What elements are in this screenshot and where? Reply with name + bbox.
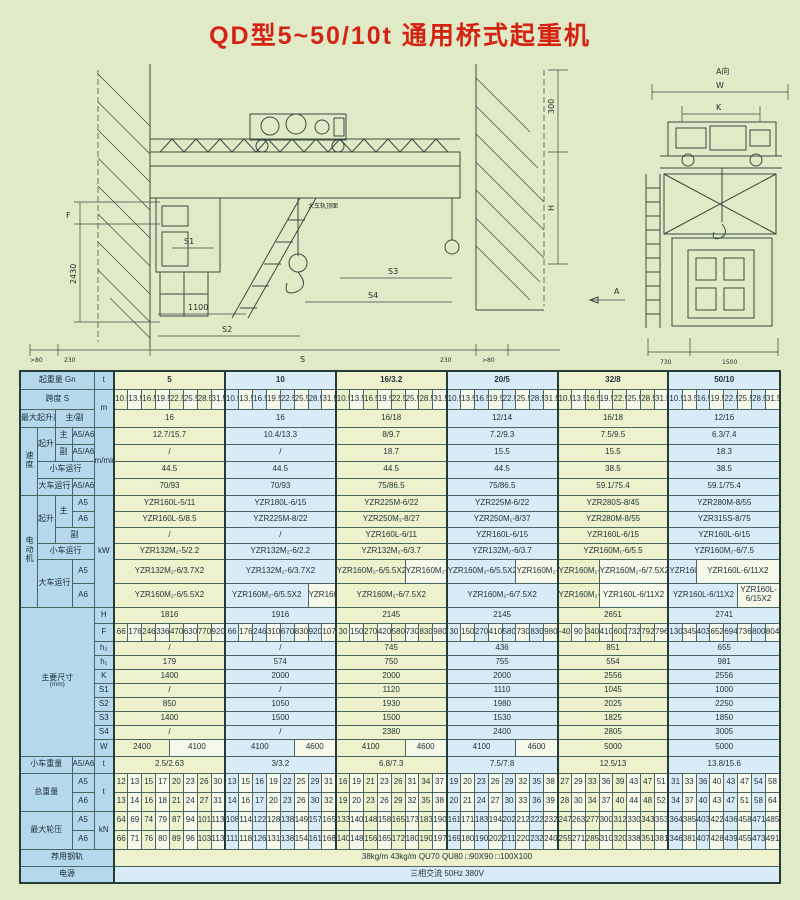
wheel-load-a6-cell: 89 [169,830,183,849]
rail-value: 38kg/m 43kg/m QU70 QU80 □90X90 □100X100 [114,849,780,866]
label-motor: 电动机 [20,495,37,607]
total-weight-a6-cell: 29 [391,792,405,811]
dim-name-h1: h₁ [94,655,114,669]
dim-k-cell: 2000 [336,669,447,683]
wheel-load-a6-cell: 428 [710,830,724,849]
dim-k-cell: 2556 [558,669,669,683]
dim-s2-cell: 1050 [225,697,336,711]
wheel-load-a6-cell: 96 [183,830,197,849]
dim-f-cell: 670 [280,623,294,641]
label-total-weight: 总重量 [20,773,72,811]
motor-aux-cell: YZR160L-6/15 [447,527,558,543]
label-dims-sub: (mm) [21,682,94,689]
speed-bridge-cell: 59.1/75.4 [558,478,669,495]
dim-s4-cell: / [114,725,225,739]
motor-bridge-a6-cell: YZR160L-6/11X2 [599,583,668,607]
dim-f-cell: 176 [239,623,253,641]
dim-name-h2: h₂ [94,641,114,655]
motor-trolley-cell: YZR160M₂-6/7.5 [668,543,780,559]
span-cell: 22.5 [502,389,516,409]
dim-s1-cell: / [225,683,336,697]
motor-trolley-cell: YZR160M₁-6/5.5 [558,543,669,559]
wheel-load-a6-cell: 168 [322,830,336,849]
wheel-load-a5-cell: 79 [156,811,170,830]
end-truck [156,198,316,318]
span-cell: 10.5 [336,389,350,409]
motor-aux-cell: / [225,527,336,543]
total-weight-a6-cell: 20 [447,792,461,811]
dim-h-cell: 1916 [225,607,336,623]
wheel-load-a6-cell: 455 [738,830,752,849]
unit-t: t [94,773,114,811]
total-weight-a5-cell: 25 [294,773,308,792]
wheel-load-a6-cell: 255 [558,830,572,849]
speed-main-cell: 8/9.7 [336,427,447,444]
dim-f-cell: 403 [696,623,710,641]
wheel-load-a5-cell: 87 [169,811,183,830]
dim-s4-cell: 2380 [336,725,447,739]
label-a6: A6 [72,830,94,849]
motor-bridge-a6-cell: YZR160M₂-6/7.5X2 [308,583,336,607]
span-cell: 25.5 [516,389,530,409]
motor-bridge-a5-cell: YZR160M₂-6/5.5X2 [336,559,405,583]
total-weight-a6-cell: 23 [280,792,294,811]
wheel-load-a5-cell: 69 [128,811,142,830]
total-weight-a5-cell: 36 [696,773,710,792]
bridge-girder [150,139,460,198]
motor-bridge-a6-cell: YZR160M₂-6/7.5X2 [558,583,600,607]
total-weight-a5-cell: 35 [530,773,544,792]
label-main: 主 [55,495,72,527]
dim-f-cell: 246 [253,623,267,641]
dim-f-cell: 150 [461,623,475,641]
dim-f-cell: 736 [738,623,752,641]
motor-bridge-a6-cell: YZR160L-6/15X2 [738,583,780,607]
total-weight-a6-cell: 14 [128,792,142,811]
dim-s2-cell: 1930 [336,697,447,711]
motor-aux-cell: YZR160L-6/11 [336,527,447,543]
lift-height-cell: 12/16 [668,409,780,427]
span-cell: 31.5 [765,389,780,409]
dim-name-S1: S1 [94,683,114,697]
label-a6: A6 [72,792,94,811]
speed-aux-cell: 15.5 [447,444,558,461]
label-dims: 主要尺寸(mm) [20,607,94,756]
wheel-load-a6-cell: 271 [571,830,585,849]
total-weight-a6-cell: 34 [585,792,599,811]
total-weight-a5-cell: 15 [142,773,156,792]
span-cell: 10.5 [447,389,461,409]
dim-f-cell: 730 [405,623,419,641]
label-a6: A6 [72,583,94,607]
dim-f-cell: 580 [391,623,405,641]
unit-m-min: m/min [94,427,114,495]
motor-main-a6-cell: YZR250M₁-8/37 [447,511,558,527]
motor-bridge-a6-cell: YZR160M₂-6/7.5X2 [447,583,558,607]
speed-aux-cell: / [114,444,225,461]
total-weight-a6-cell: 21 [461,792,475,811]
total-weight-a5-cell: 22 [280,773,294,792]
dim-f-cell: 66 [114,623,128,641]
total-weight-a5-cell: 23 [377,773,391,792]
dim-span-label: S [300,355,305,364]
dim-f-cell: 792 [641,623,655,641]
unit-t: t [94,756,114,773]
wheel-load-a6-cell: 346 [668,830,682,849]
span-cell: 10.5 [668,389,682,409]
span-cell: 25.5 [627,389,641,409]
span-cell: 22.5 [391,389,405,409]
total-weight-a6-cell: 27 [197,792,211,811]
dim-s2-cell: 850 [114,697,225,711]
span-cell: 28.5 [530,389,544,409]
total-weight-a6-cell: 44 [627,792,641,811]
span-cell: 22.5 [613,389,627,409]
wheel-load-a6-cell: 111 [225,830,239,849]
dim-s3-cell: 1825 [558,711,669,725]
speed-main-cell: 7.2/9.3 [447,427,558,444]
total-weight-a5-cell: 16 [253,773,267,792]
wheel-load-a6-cell: 202 [488,830,502,849]
specification-table: 起重量 Gnt51016/3.220/532/850/10跨度 Sm10.513… [19,370,781,884]
wheel-load-a6-cell: 80 [156,830,170,849]
aux-pulley [445,198,459,254]
wheel-load-a6-cell: 381 [682,830,696,849]
wheel-load-a5-cell: 94 [183,811,197,830]
speed-main-cell: 6.3/7.4 [668,427,780,444]
left-wall [98,64,150,348]
total-weight-a5-cell: 29 [571,773,585,792]
dim-k-cell: 2556 [668,669,780,683]
capacity-header: 16/3.2 [336,371,447,389]
dim-f-cell: 270 [474,623,488,641]
speed-bridge-cell: 75/86.5 [336,478,447,495]
wheel-load-a6-cell: 351 [641,830,655,849]
dim-h-label: H [547,205,556,211]
wheel-load-a5-cell: 385 [682,811,696,830]
span-cell: 16.5 [142,389,156,409]
wheel-load-a6-cell: 320 [613,830,627,849]
dim-f-cell: 980 [544,623,558,641]
motor-main-a5-cell: YZR280M-8/55 [668,495,780,511]
wheel-load-a5-cell: 343 [641,811,655,830]
motor-main-a6-cell: YZR160L-5/8.5 [114,511,225,527]
label-a5: A5 [72,811,94,830]
total-weight-a5-cell: 15 [239,773,253,792]
dim-s1-cell: 1110 [447,683,558,697]
total-weight-a6-cell: 32 [405,792,419,811]
wheel-load-a6-cell: 232 [530,830,544,849]
total-weight-a5-cell: 32 [516,773,530,792]
dim-gt80-right: >80 [482,357,495,364]
dim-f-cell: 980 [433,623,447,641]
dim-w-label: W [716,81,724,90]
dim-s3-cell: 1850 [668,711,780,725]
dim-f-cell: 652 [710,623,724,641]
wheel-load-a6-cell: 381 [655,830,669,849]
span-cell: 25.5 [294,389,308,409]
dim-h1-cell: 179 [114,655,225,669]
total-weight-a5-cell: 12 [114,773,128,792]
total-weight-a5-cell: 16 [336,773,350,792]
wheel-load-a6-cell: 407 [696,830,710,849]
dim-s1-label: S1 [184,237,194,246]
total-weight-a5-cell: 43 [724,773,738,792]
wheel-load-a5-cell: 222 [530,811,544,830]
dim-s3-cell: 1500 [336,711,447,725]
total-weight-a6-cell: 58 [752,792,766,811]
span-cell: 31.5 [433,389,447,409]
dim-s1-cell: / [114,683,225,697]
wheel-load-a5-cell: 128 [266,811,280,830]
dim-w-cell: 5000 [558,739,669,756]
dim-s1-cell: 1000 [668,683,780,697]
total-weight-a5-cell: 26 [391,773,405,792]
dim-730-label: 730 [660,359,672,366]
total-weight-a5-cell: 21 [364,773,378,792]
trolley-weight-cell: 13.8/15.6 [668,756,780,773]
lift-height-cell: 16/18 [336,409,447,427]
total-weight-a6-cell: 51 [738,792,752,811]
total-weight-a6-cell: 38 [433,792,447,811]
label-a6: A6 [72,511,94,527]
capacity-header: 32/8 [558,371,669,389]
span-cell: 13.5 [571,389,585,409]
total-weight-a6-cell: 28 [558,792,572,811]
total-weight-a5-cell: 47 [641,773,655,792]
wheel-load-a6-cell: 285 [585,830,599,849]
wheel-load-a6-cell: 138 [280,830,294,849]
wheel-load-a5-cell: 312 [613,811,627,830]
total-weight-a6-cell: 30 [571,792,585,811]
label-wheel-load: 最大轮压 [20,811,72,849]
total-weight-a6-cell: 37 [599,792,613,811]
total-weight-a6-cell: 31 [211,792,225,811]
motor-bridge-a5-cell: YZR160M₂-6/5.5X2 [447,559,516,583]
speed-aux-cell: / [225,444,336,461]
dim-h2-cell: 436 [447,641,558,655]
span-cell: 28.5 [641,389,655,409]
wheel-load-a6-cell: 76 [142,830,156,849]
dim-230-right: 230 [440,357,452,364]
label-rail: 荐用钢轨 [20,849,114,866]
speed-trolley-cell: 44.5 [336,461,447,478]
side-view: A向 W K [646,66,788,366]
span-cell: 10.5 [225,389,239,409]
dim-f-cell: 176 [128,623,142,641]
dim-s4-cell: 3005 [668,725,780,739]
span-cell: 16.5 [696,389,710,409]
dim-s4-label: S4 [368,291,378,300]
wheel-load-a5-cell: 183 [474,811,488,830]
dim-h1-cell: 750 [336,655,447,669]
total-weight-a6-cell: 37 [682,792,696,811]
dim-k-label: K [716,103,722,112]
rail-top-note: 大车轨顶面 [308,202,338,210]
wheel-load-a5-cell: 190 [433,811,447,830]
wheel-load-a6-cell: 113 [211,830,225,849]
label-a5a6: A5/A6 [72,427,94,444]
dim-h1-cell: 554 [558,655,669,669]
wheel-load-a6-cell: 172 [391,830,405,849]
span-cell: 16.5 [253,389,267,409]
speed-main-cell: 7.5/9.5 [558,427,669,444]
label-capacity: 起重量 Gn [20,371,94,389]
label-bridge-travel: 大车运行 [37,559,72,607]
span-cell: 31.5 [655,389,669,409]
wheel-load-a6-cell: 148 [350,830,364,849]
total-weight-a5-cell: 51 [655,773,669,792]
motor-bridge-a5-cell: YZR160M₂-6/7.5X2 [516,559,558,583]
motor-aux-cell: / [114,527,225,543]
dim-s3-label: S3 [388,267,398,276]
total-weight-a5-cell: 26 [197,773,211,792]
total-weight-a5-cell: 27 [558,773,572,792]
motor-bridge-a5-cell: YZR132M₂-6/3.7X2 [225,559,336,583]
capacity-header: 10 [225,371,336,389]
span-cell: 19.5 [377,389,391,409]
span-cell: 16.5 [474,389,488,409]
total-weight-a5-cell: 37 [433,773,447,792]
capacity-header: 5 [114,371,225,389]
speed-bridge-cell: 70/93 [225,478,336,495]
total-weight-a5-cell: 26 [488,773,502,792]
wheel-load-a6-cell: 156 [364,830,378,849]
dim-w-cell: 5000 [668,739,780,756]
dim-f-cell: 630 [183,623,197,641]
dim-f-cell: 600 [613,623,627,641]
dim-f-cell: 420 [377,623,391,641]
dim-f-cell: 30 [336,623,350,641]
total-weight-a5-cell: 31 [322,773,336,792]
wheel-load-a5-cell: 165 [391,811,405,830]
label-a5a6: A5/A6 [72,756,94,773]
wheel-load-a6-cell: 180 [461,830,475,849]
dim-f-cell: 410 [599,623,613,641]
dim-s4-cell: 2400 [447,725,558,739]
capacity-header: 50/10 [668,371,780,389]
right-wall [476,64,544,310]
dim-name-K: K [94,669,114,683]
wheel-load-a6-cell: 190 [474,830,488,849]
wheel-load-a6-cell: 190 [419,830,433,849]
total-weight-a5-cell: 20 [461,773,475,792]
dim-f-cell: 730 [516,623,530,641]
dim-s1-cell: 1120 [336,683,447,697]
label-speed: 速度 [20,427,37,495]
wheel-load-a6-cell: 473 [752,830,766,849]
wheel-load-a6-cell: 140 [336,830,350,849]
dim-f-cell: 270 [364,623,378,641]
motor-bridge-a5-cell: YZR160M₁-6/5.5X2 [558,559,600,583]
dim-f-cell: 30 [447,623,461,641]
motor-trolley-cell: YZR132M₂-5/2.2 [114,543,225,559]
dim-k-cell: 2000 [225,669,336,683]
dim-s3-cell: 1400 [114,711,225,725]
span-cell: 13.5 [239,389,253,409]
dim-f-cell: 920 [211,623,225,641]
dim-h-cell: 2651 [558,607,669,623]
motor-bridge-a6-cell: YZR160M₂-6/7.5X2 [336,583,447,607]
total-weight-a5-cell: 30 [211,773,225,792]
motor-bridge-a5-cell: YZR160M₂-6/7.5X2 [668,559,696,583]
label-lift-height: 最大起升高度 [20,409,55,427]
dim-h2-cell: 745 [336,641,447,655]
trolley-weight-cell: 7.5/7.8 [447,756,558,773]
wheel-load-a5-cell: 140 [350,811,364,830]
dim-h-cell: 1816 [114,607,225,623]
wheel-load-a5-cell: 165 [322,811,336,830]
dim-s3-cell: 1500 [225,711,336,725]
wheel-load-a6-cell: 338 [627,830,641,849]
dim-h2-cell: / [114,641,225,655]
total-weight-a6-cell: 48 [641,792,655,811]
speed-bridge-cell: 59.1/75.4 [668,478,780,495]
wheel-load-a5-cell: 422 [710,811,724,830]
total-weight-a5-cell: 19 [350,773,364,792]
total-weight-a5-cell: 36 [599,773,613,792]
dim-230-left: 230 [64,357,76,364]
total-weight-a5-cell: 17 [156,773,170,792]
total-weight-a5-cell: 40 [710,773,724,792]
label-aux: 副 [55,444,72,461]
dim-300-label: 300 [547,99,556,114]
motor-main-a6-cell: YZR280M-8/55 [558,511,669,527]
dim-f-cell: -40 [558,623,572,641]
wheel-load-a5-cell: 247 [558,811,572,830]
label-span: 跨度 S [20,389,94,409]
dim-f-cell: 920 [308,623,322,641]
dim-h1-cell: 755 [447,655,558,669]
motor-bridge-a5-cell: YZR160M₂-6/7.5X2 [599,559,668,583]
span-cell: 13.5 [461,389,475,409]
motor-main-a5-cell: YZR180L-6/15 [225,495,336,511]
label-a5a6: A5/A6 [72,478,94,495]
wheel-load-a6-cell: 161 [308,830,322,849]
label-a5: A5 [72,559,94,583]
span-cell: 28.5 [419,389,433,409]
wheel-load-a6-cell: 491 [765,830,780,849]
motor-bridge-a6-cell: YZR160M₂-6/5.5X2 [114,583,225,607]
side-view-title: A向 [716,66,729,76]
wheel-load-a5-cell: 114 [239,811,253,830]
dim-f-cell: 130 [668,623,682,641]
span-cell: 28.5 [197,389,211,409]
wheel-load-a5-cell: 157 [308,811,322,830]
crane-drawing: F 2430 S1 1100 S2 >80 230 S 230 >80 300 … [0,56,800,368]
span-cell: 19.5 [488,389,502,409]
wheel-load-a6-cell: 211 [502,830,516,849]
label-power: 电源 [20,866,114,883]
total-weight-a6-cell: 16 [239,792,253,811]
span-cell: 19.5 [266,389,280,409]
wheel-load-a6-cell: 180 [405,830,419,849]
total-weight-a6-cell: 40 [696,792,710,811]
dim-s4-cell: 2805 [558,725,669,739]
total-weight-a6-cell: 34 [668,792,682,811]
wheel-load-a5-cell: 202 [502,811,516,830]
total-weight-a5-cell: 39 [613,773,627,792]
total-weight-a6-cell: 47 [724,792,738,811]
wheel-load-a5-cell: 133 [336,811,350,830]
span-cell: 25.5 [405,389,419,409]
lift-height-cell: 16 [225,409,336,427]
span-cell: 28.5 [752,389,766,409]
span-cell: 31.5 [322,389,336,409]
label-trolley-travel: 小车运行 [37,543,94,559]
wheel-load-a5-cell: 148 [364,811,378,830]
total-weight-a6-cell: 64 [765,792,780,811]
